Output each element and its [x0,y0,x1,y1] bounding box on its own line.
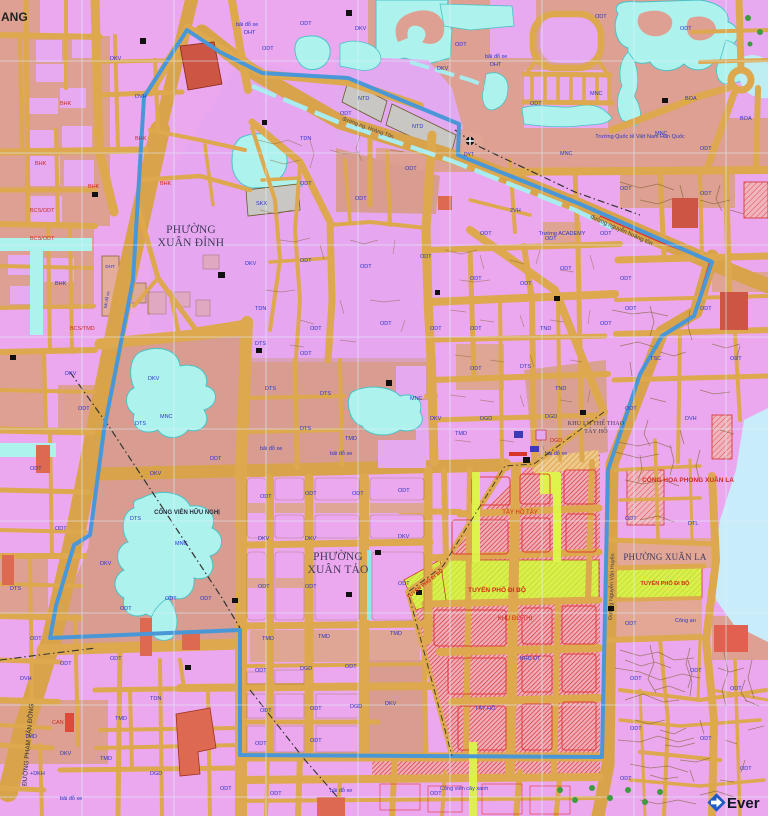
svg-text:+DKH: +DKH [30,771,45,777]
svg-text:DHT: DHT [490,62,502,68]
svg-text:ODT: ODT [165,596,177,602]
svg-text:ODT: ODT [300,181,312,187]
svg-text:TND: TND [555,386,566,392]
svg-text:KHU LH THỂ THAO: KHU LH THỂ THAO [568,419,625,427]
svg-text:ODT: ODT [700,191,712,197]
svg-text:ODT: ODT [260,708,272,714]
svg-text:Công an: Công an [675,618,696,624]
svg-text:XUÂN ĐỈNH: XUÂN ĐỈNH [158,235,225,249]
svg-text:ODT: ODT [255,741,267,747]
svg-text:DGD: DGD [545,414,557,420]
svg-text:ODT: ODT [120,606,132,612]
svg-text:BHK: BHK [88,184,100,190]
svg-text:ODT: ODT [700,306,712,312]
svg-text:ODT: ODT [455,42,467,48]
svg-text:DKV: DKV [385,701,397,707]
svg-text:PHƯỜNG XUÂN LA: PHƯỜNG XUÂN LA [623,552,707,562]
svg-text:ODT: ODT [630,726,642,732]
svg-text:bãi đỗ xe: bãi đỗ xe [330,450,352,457]
svg-text:2VH: 2VH [510,208,521,214]
svg-text:DGD: DGD [300,666,312,672]
svg-text:DKV: DKV [437,66,449,72]
svg-text:CÔNG VIÊN HỮU NGHỊ: CÔNG VIÊN HỮU NGHỊ [154,508,220,516]
svg-text:BCS/ODT: BCS/ODT [30,208,55,214]
svg-text:TMD: TMD [390,631,402,637]
svg-text:ODT: ODT [300,258,312,264]
svg-text:DTS: DTS [300,426,311,432]
svg-text:ODT: ODT [220,786,232,792]
svg-text:ODT: ODT [470,326,482,332]
svg-text:BHK: BHK [60,101,72,107]
svg-text:ODT: ODT [270,791,282,797]
svg-text:ODT: ODT [630,676,642,682]
svg-text:ODT: ODT [520,281,532,287]
svg-text:TMD: TMD [455,431,467,437]
svg-text:ODT: ODT [560,266,572,272]
svg-text:DTS: DTS [320,391,331,397]
svg-text:Công viên cây xanh: Công viên cây xanh [440,786,488,792]
svg-text:BHK: BHK [55,281,67,287]
svg-text:TMD: TMD [100,756,112,762]
svg-text:DGD: DGD [150,771,162,777]
svg-text:DTL: DTL [688,521,698,527]
svg-text:TDN: TDN [150,696,161,702]
svg-text:ODT: ODT [262,46,274,52]
svg-text:Ever: Ever [727,795,760,812]
svg-text:PHƯỜNG: PHƯỜNG [166,222,216,236]
svg-text:ODT: ODT [600,231,612,237]
svg-text:ODT: ODT [480,231,492,237]
svg-text:ODT: ODT [625,306,637,312]
svg-text:DKV: DKV [60,751,72,757]
svg-text:DTS: DTS [255,341,266,347]
svg-text:BCS/TMD: BCS/TMD [70,326,95,332]
svg-text:ODT: ODT [360,264,372,270]
svg-text:ODT: ODT [620,776,632,782]
svg-text:ODT: ODT [398,488,410,494]
svg-text:TMD: TMD [262,636,274,642]
svg-text:ODT: ODT [530,101,542,107]
svg-text:TDN: TDN [300,136,311,142]
svg-text:TMD: TMD [345,436,357,442]
svg-text:ODT: ODT [305,491,317,497]
svg-text:ODT: ODT [110,656,122,662]
svg-text:ODT: ODT [310,738,322,744]
svg-text:DKV: DKV [148,376,160,382]
svg-text:Trường ACADEMY: Trường ACADEMY [539,231,586,237]
svg-text:ODT: ODT [700,146,712,152]
svg-text:BHK: BHK [35,161,47,167]
svg-text:DTS: DTS [130,516,141,522]
svg-text:ODT: ODT [700,736,712,742]
svg-text:ODT: ODT [300,351,312,357]
svg-text:ODT: ODT [625,621,637,627]
svg-text:ODT: ODT [625,406,637,412]
svg-text:ODT: ODT [200,596,212,602]
svg-text:ODT: ODT [255,668,267,674]
svg-text:ODT: ODT [620,276,632,282]
svg-text:ODT: ODT [405,166,417,172]
svg-text:ODT: ODT [55,526,67,532]
svg-text:bãi đỗ xe: bãi đỗ xe [485,53,507,60]
svg-text:DTS: DTS [10,586,21,592]
svg-text:DKV: DKV [245,261,257,267]
svg-text:ODT: ODT [310,326,322,332]
svg-text:CỔNG HOA PHONG XUÂN LA: CỔNG HOA PHONG XUÂN LA [642,475,734,484]
svg-text:TÂY HỒ: TÂY HỒ [584,427,608,435]
svg-text:ODT: ODT [260,494,272,500]
svg-text:BHK: BHK [135,136,147,142]
svg-text:DVH: DVH [20,676,32,682]
svg-text:BOA: BOA [685,96,697,102]
svg-text:ODT: ODT [600,321,612,327]
svg-text:PHƯỜNG: PHƯỜNG [313,549,363,563]
svg-text:bãi đỗ xe: bãi đỗ xe [60,795,82,802]
svg-text:DHT: DHT [105,264,114,269]
svg-text:MNC: MNC [175,541,188,547]
svg-text:BHK: BHK [160,181,172,187]
svg-text:ODT: ODT [78,406,90,412]
svg-text:DKV: DKV [65,371,77,377]
svg-text:ODT: ODT [60,661,72,667]
svg-text:ODT: ODT [730,686,742,692]
svg-text:ODT: ODT [730,356,742,362]
svg-text:MNC: MNC [560,151,573,157]
svg-text:ODT: ODT [300,21,312,27]
svg-text:DKV: DKV [398,534,410,540]
svg-text:NTD: NTD [412,124,423,130]
svg-text:DKV: DKV [430,416,442,422]
svg-text:bãi đỗ xe: bãi đỗ xe [236,21,258,28]
svg-text:DYT: DYT [464,152,474,158]
svg-text:bãi đỗ xe: bãi đỗ xe [260,445,282,452]
svg-text:ODT: ODT [258,584,270,590]
svg-text:ODT: ODT [690,668,702,674]
svg-text:DKV: DKV [258,536,270,542]
svg-text:XUÂN TẢO: XUÂN TẢO [307,562,368,576]
svg-text:TMD: TMD [318,634,330,640]
svg-text:MNC: MNC [590,91,603,97]
svg-text:TMD: TMD [115,716,127,722]
svg-text:DKV: DKV [100,561,112,567]
svg-text:DKV: DKV [355,26,367,32]
svg-text:ODT: ODT [470,366,482,372]
svg-text:TÂY HỒ: TÂY HỒ [475,705,496,712]
svg-text:bãi đỗ xe: bãi đỗ xe [330,787,352,794]
svg-text:ODT: ODT [740,766,752,772]
svg-text:DDT: DDT [210,456,222,462]
svg-text:DGD: DGD [550,438,562,444]
svg-text:ODT: ODT [470,276,482,282]
svg-text:ODT: ODT [625,516,637,522]
svg-text:DTS: DTS [265,386,276,392]
svg-text:ODT: ODT [595,14,607,20]
svg-text:KHU ĐT: KHU ĐT [520,656,541,662]
svg-text:DTS: DTS [135,421,146,427]
svg-text:DKV: DKV [305,536,317,542]
svg-text:DTS: DTS [520,364,531,370]
svg-text:ANG: ANG [1,10,28,24]
svg-text:ODT: ODT [305,584,317,590]
svg-text:DKV: DKV [150,471,162,477]
svg-text:TSC: TSC [650,356,661,362]
svg-text:TMD: TMD [25,734,37,740]
svg-text:ODT: ODT [30,636,42,642]
svg-text:ODT: ODT [345,664,357,670]
svg-text:DGD: DGD [480,416,492,422]
svg-text:ODT: ODT [620,186,632,192]
svg-text:ODT: ODT [310,706,322,712]
svg-text:ODT: ODT [680,26,692,32]
svg-text:MNC: MNC [410,396,423,402]
svg-text:DHT: DHT [244,30,256,36]
svg-text:ODT: ODT [355,196,367,202]
svg-text:ODT: ODT [430,326,442,332]
svg-text:ODT: ODT [340,111,352,117]
svg-text:KHU ĐÔ THỊ: KHU ĐÔ THỊ [498,615,533,622]
svg-text:ODT: ODT [420,254,432,260]
svg-text:TÂY HỒ TÂY: TÂY HỒ TÂY [502,509,537,516]
svg-text:ODT: ODT [398,581,410,587]
svg-text:MNC: MNC [160,414,173,420]
svg-text:SKX: SKX [256,201,267,207]
svg-text:BOA: BOA [740,116,752,122]
svg-text:BCS/ODT: BCS/ODT [30,236,55,242]
svg-text:NTD: NTD [358,96,369,102]
svg-text:DVH: DVH [685,416,697,422]
svg-text:ODT: ODT [352,491,364,497]
svg-text:CAN: CAN [52,720,64,726]
svg-text:DVH: DVH [135,94,147,100]
svg-text:TUYẾN PHỐ ĐI BỘ: TUYẾN PHỐ ĐI BỘ [641,579,691,587]
svg-text:ODT: ODT [30,466,42,472]
svg-text:TND: TND [540,326,551,332]
svg-text:Trường Quốc tế Việt Nam Hàn Qu: Trường Quốc tế Việt Nam Hàn Quốc [595,134,685,140]
svg-text:TDN: TDN [255,306,266,312]
svg-text:ODT: ODT [380,321,392,327]
svg-text:DKV: DKV [110,56,122,62]
svg-text:DGD: DGD [350,704,362,710]
